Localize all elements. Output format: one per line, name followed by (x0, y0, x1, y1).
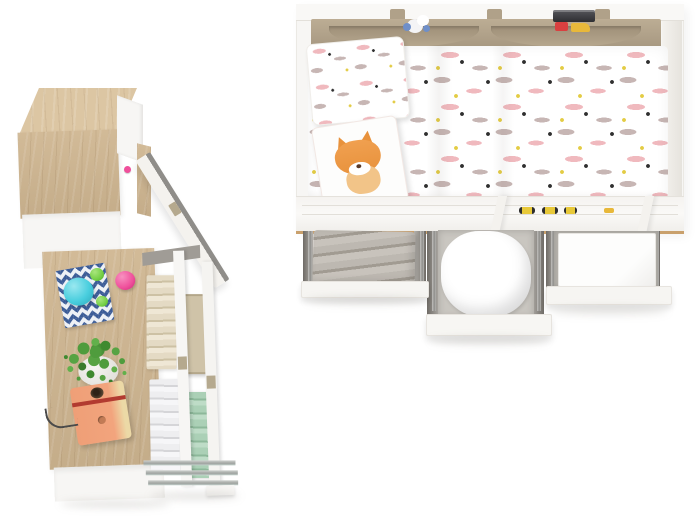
toy-car-icon (564, 207, 577, 214)
underbed-drawer-left (300, 228, 430, 300)
toy-truck (551, 10, 601, 38)
scene-kids-room-top-view (0, 0, 700, 521)
folded-white-towel (149, 379, 180, 471)
duvet-fold (492, 46, 514, 204)
drawer-front (546, 286, 672, 305)
floor-shadow (60, 500, 170, 508)
drawer-front (301, 281, 429, 298)
drawer-glide (146, 470, 238, 475)
bed-pillow (306, 36, 411, 126)
plush-ear (403, 23, 411, 31)
toy-car-icon (519, 207, 535, 214)
toy-radio (70, 380, 135, 448)
plush-paw (423, 25, 430, 32)
gray-blanket (313, 230, 416, 286)
underbed-drawer-right (544, 228, 672, 310)
divider-handle (178, 356, 187, 369)
door-handle (168, 201, 182, 216)
divider-handle (206, 375, 215, 388)
storage-drawer (140, 247, 249, 500)
wardrobe-knob (124, 166, 131, 173)
white-linens (558, 233, 656, 287)
truck-body (553, 10, 595, 22)
drawer-front (426, 314, 552, 336)
floor-shadow (306, 297, 426, 305)
wardrobe-front-face (18, 129, 121, 218)
toy-car-icon (542, 207, 558, 214)
plush-toy (403, 13, 433, 39)
duvet-fold (426, 46, 452, 204)
toy-yellow-block (571, 23, 590, 32)
underbed-drawer-middle (424, 228, 552, 340)
folded-linen-stack (147, 275, 177, 369)
floor-shadow (430, 337, 548, 345)
stored-pillow (441, 231, 531, 317)
toy-car-icon (604, 208, 614, 213)
toy-red-block (555, 22, 568, 31)
floor-shadow (150, 492, 240, 500)
floor-shadow (550, 307, 668, 315)
drawer-glide (143, 460, 235, 465)
rail-toy-cars (515, 205, 625, 217)
